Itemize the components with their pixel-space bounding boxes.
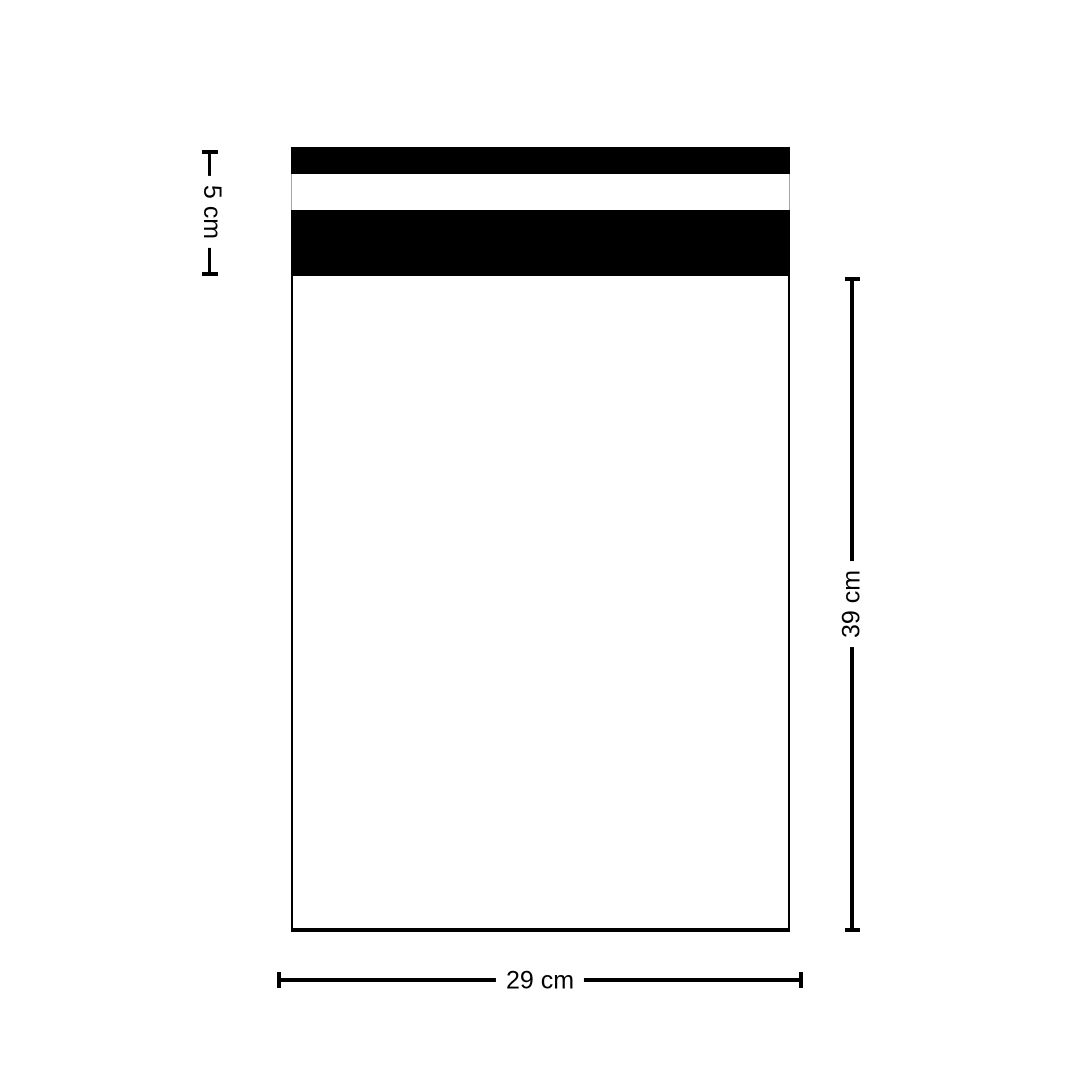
- width-dimension-cap-right: [799, 972, 803, 988]
- flap-adhesive-gap: [291, 174, 790, 210]
- flap-dimension-label: 5 cm: [195, 176, 227, 248]
- flap-bottom-strip: [291, 210, 790, 276]
- flap-top-strip: [291, 147, 790, 174]
- height-dimension-cap-bottom: [845, 928, 860, 932]
- width-dimension-label: 29 cm: [496, 967, 584, 995]
- mailer-bag: [291, 147, 790, 932]
- height-dimension-label: 39 cm: [836, 561, 868, 647]
- bag-body: [291, 276, 790, 932]
- flap-dimension-cap-bottom: [202, 272, 218, 276]
- mailer-bag-diagram: 5 cm 39 cm 29 cm: [0, 0, 1079, 1079]
